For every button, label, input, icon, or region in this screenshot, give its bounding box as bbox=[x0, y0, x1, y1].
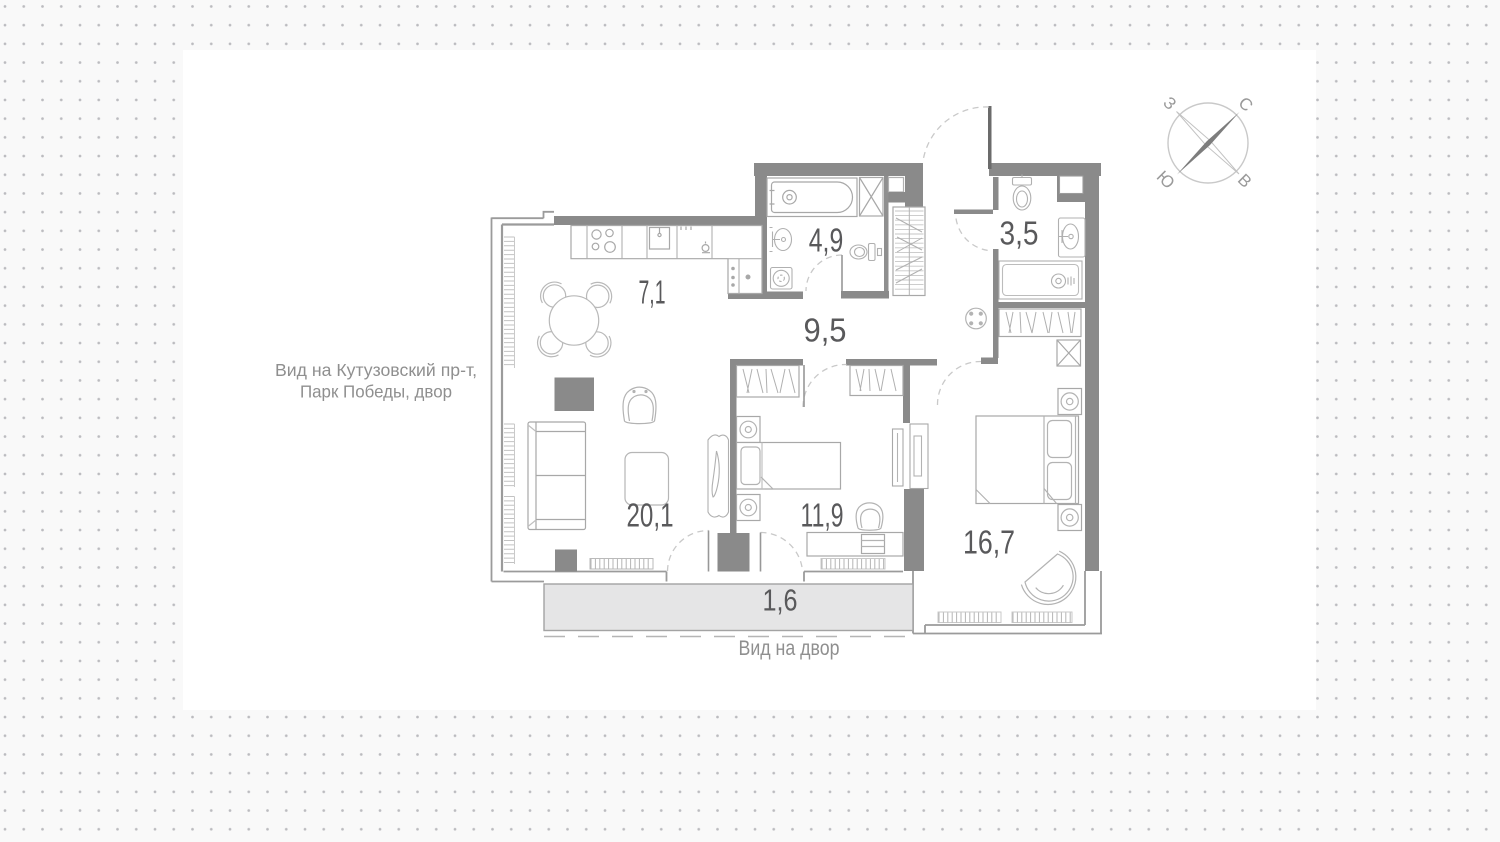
svg-text:9,5: 9,5 bbox=[804, 312, 847, 349]
svg-text:11,9: 11,9 bbox=[801, 497, 844, 534]
svg-text:1,6: 1,6 bbox=[763, 583, 798, 618]
svg-text:20,1: 20,1 bbox=[627, 497, 674, 534]
svg-text:Вид на двор: Вид на двор bbox=[739, 636, 840, 660]
svg-text:16,7: 16,7 bbox=[963, 524, 1015, 561]
svg-text:4,9: 4,9 bbox=[809, 222, 844, 259]
svg-text:3,5: 3,5 bbox=[1000, 215, 1039, 252]
svg-text:Вид на Кутузовский пр-т,: Вид на Кутузовский пр-т, bbox=[275, 360, 477, 380]
svg-text:7,1: 7,1 bbox=[639, 274, 666, 311]
svg-text:Парк Победы, двор: Парк Победы, двор bbox=[300, 382, 452, 402]
